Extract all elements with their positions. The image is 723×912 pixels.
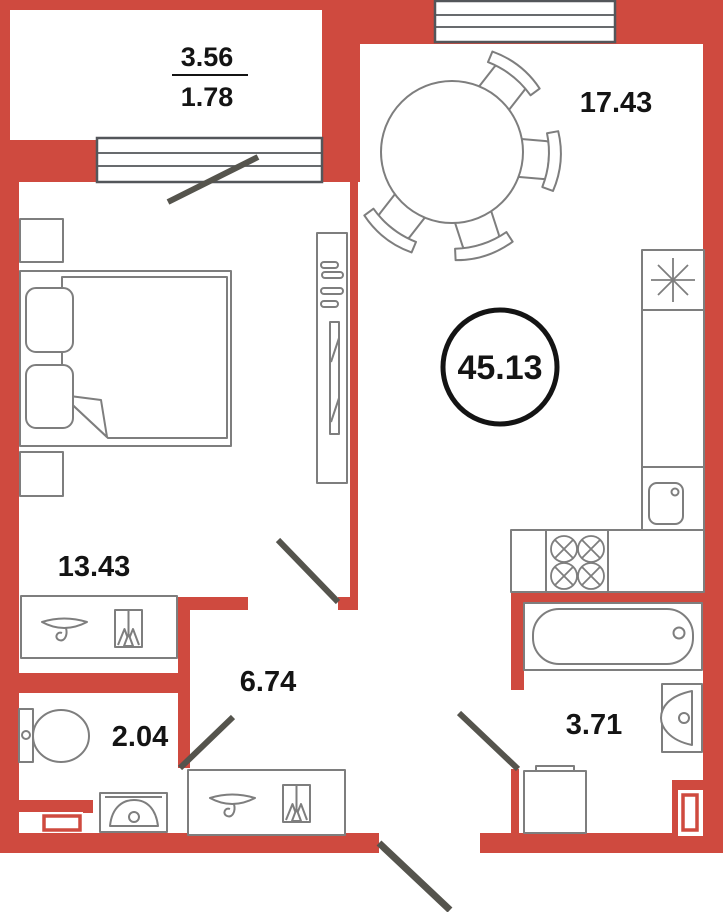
washing-machine-drawer (536, 766, 574, 771)
balcony-window (97, 138, 322, 182)
toilet-bowl (33, 710, 89, 762)
bedroom-area-label: 13.43 (58, 551, 131, 583)
wardrobe-mirror (330, 322, 339, 434)
hallway-area-label: 6.74 (240, 666, 296, 698)
toilet-button (22, 731, 30, 739)
hallway-cabinet (21, 596, 177, 658)
floor-plan-svg: 3.56 1.78 17.43 13.43 6.74 2.04 3.71 45.… (0, 0, 723, 912)
duct-shaft-icon (683, 795, 697, 830)
wardrobe (317, 233, 347, 483)
washbasin-tap (129, 812, 139, 822)
nightstand (20, 452, 63, 496)
round-dining-table (381, 81, 523, 223)
washbasin-tap (679, 713, 689, 723)
pillow (26, 288, 73, 352)
kitchen-sink-tap (672, 489, 679, 496)
shoe-cabinet-icon (115, 610, 142, 647)
wall (511, 592, 524, 690)
hallway-cabinet (188, 770, 345, 835)
balcony-reduced-area-label: 1.78 (181, 82, 234, 112)
wall (350, 182, 358, 603)
toilet-area-label: 2.04 (112, 721, 168, 753)
bathtub-inner (533, 609, 693, 664)
living-window (435, 1, 615, 42)
pillow (26, 365, 73, 428)
wall (338, 597, 358, 610)
wardrobe-shelf (321, 262, 338, 268)
wardrobe-shelf (321, 301, 338, 307)
wall (511, 592, 723, 603)
floor-plan: 3.56 1.78 17.43 13.43 6.74 2.04 3.71 45.… (0, 0, 723, 912)
wall (703, 0, 723, 853)
duct-shaft-icon (44, 816, 80, 830)
wardrobe-shelf (321, 288, 343, 294)
living-kitchen-area-label: 17.43 (580, 87, 653, 119)
shoe-cabinet-icon (283, 785, 310, 822)
total-area-label: 45.13 (457, 349, 542, 387)
wall (0, 10, 10, 140)
wall (0, 0, 360, 10)
wall (511, 769, 519, 833)
washing-machine (524, 771, 586, 833)
bathtub-drain (674, 628, 685, 639)
wall (19, 673, 190, 693)
wardrobe-shelf (322, 272, 343, 278)
nightstand (20, 219, 63, 262)
balcony-area-label: 3.56 (181, 42, 234, 72)
bathroom-area-label: 3.71 (566, 709, 622, 741)
wall (19, 800, 93, 813)
wall (0, 140, 19, 853)
